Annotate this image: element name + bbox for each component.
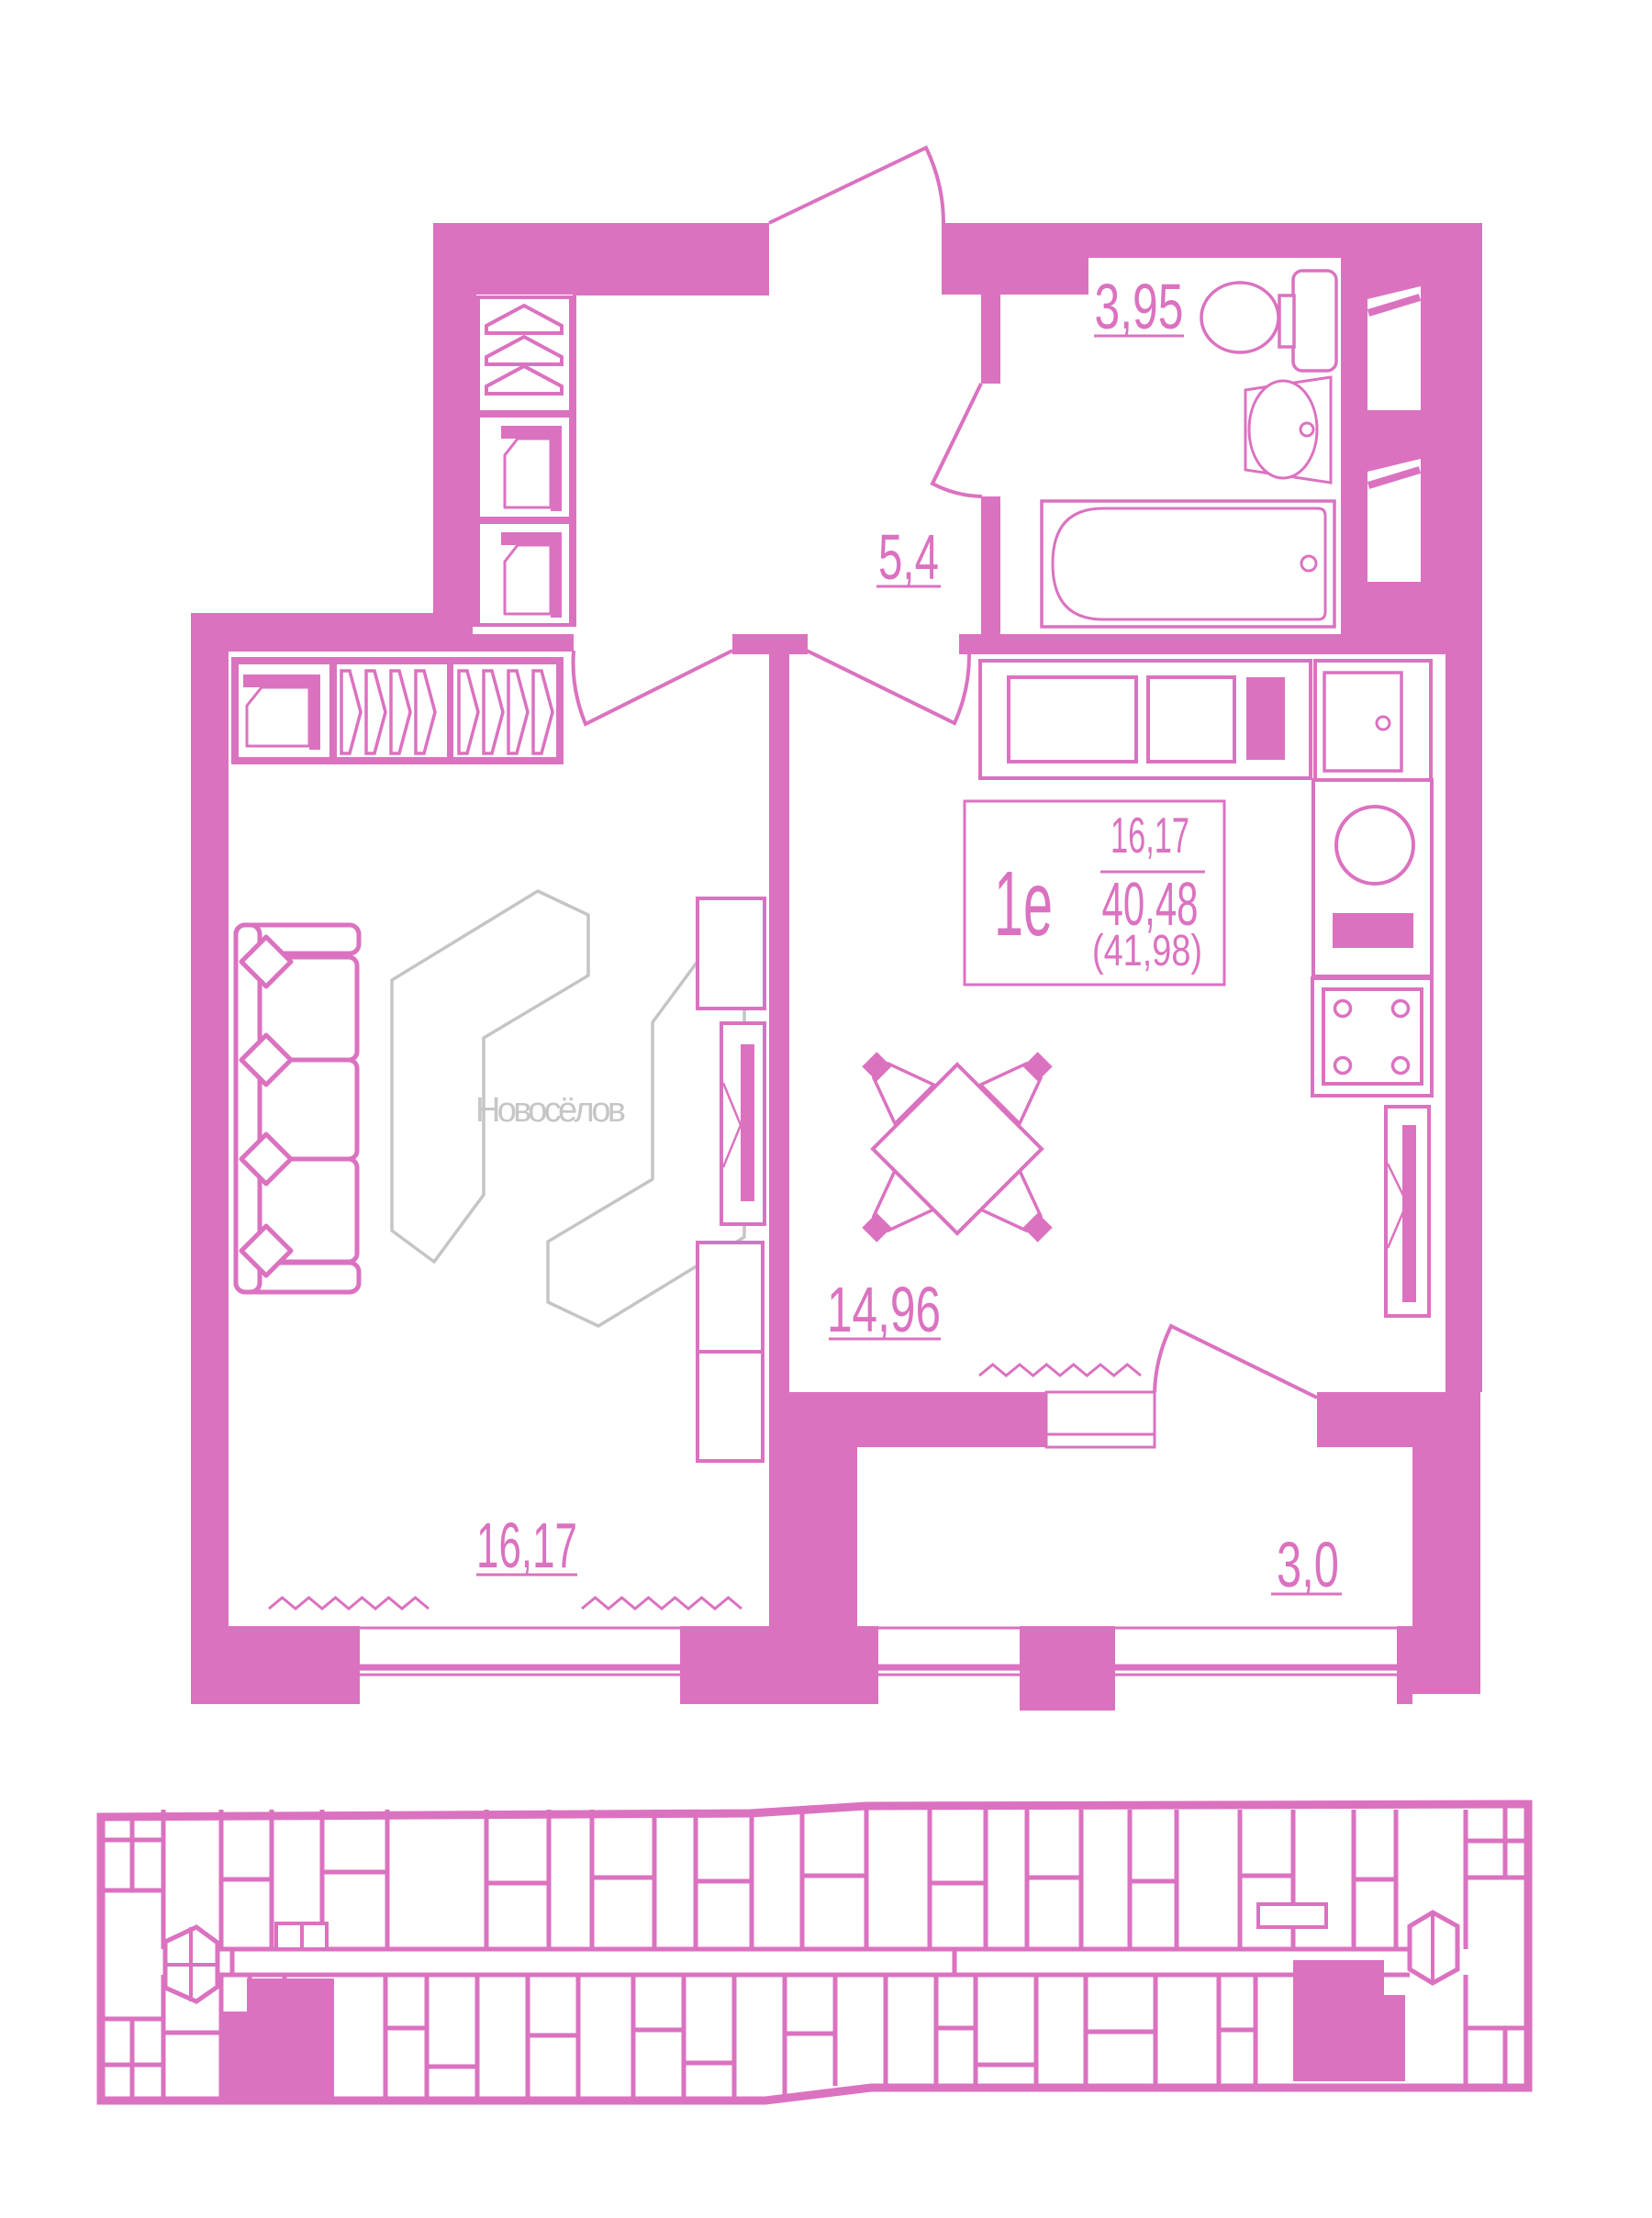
svg-text:5,4: 5,4 xyxy=(878,521,939,593)
svg-text:3,0: 3,0 xyxy=(1277,1529,1339,1600)
svg-text:3,95: 3,95 xyxy=(1095,271,1184,342)
svg-text:(41,98): (41,98) xyxy=(1092,927,1202,975)
svg-text:1е: 1е xyxy=(994,853,1053,955)
svg-text:14,96: 14,96 xyxy=(827,1274,941,1345)
svg-text:16,17: 16,17 xyxy=(1111,807,1189,864)
svg-text:Новосёлов: Новосёлов xyxy=(475,1091,626,1130)
svg-text:16,17: 16,17 xyxy=(476,1510,577,1581)
